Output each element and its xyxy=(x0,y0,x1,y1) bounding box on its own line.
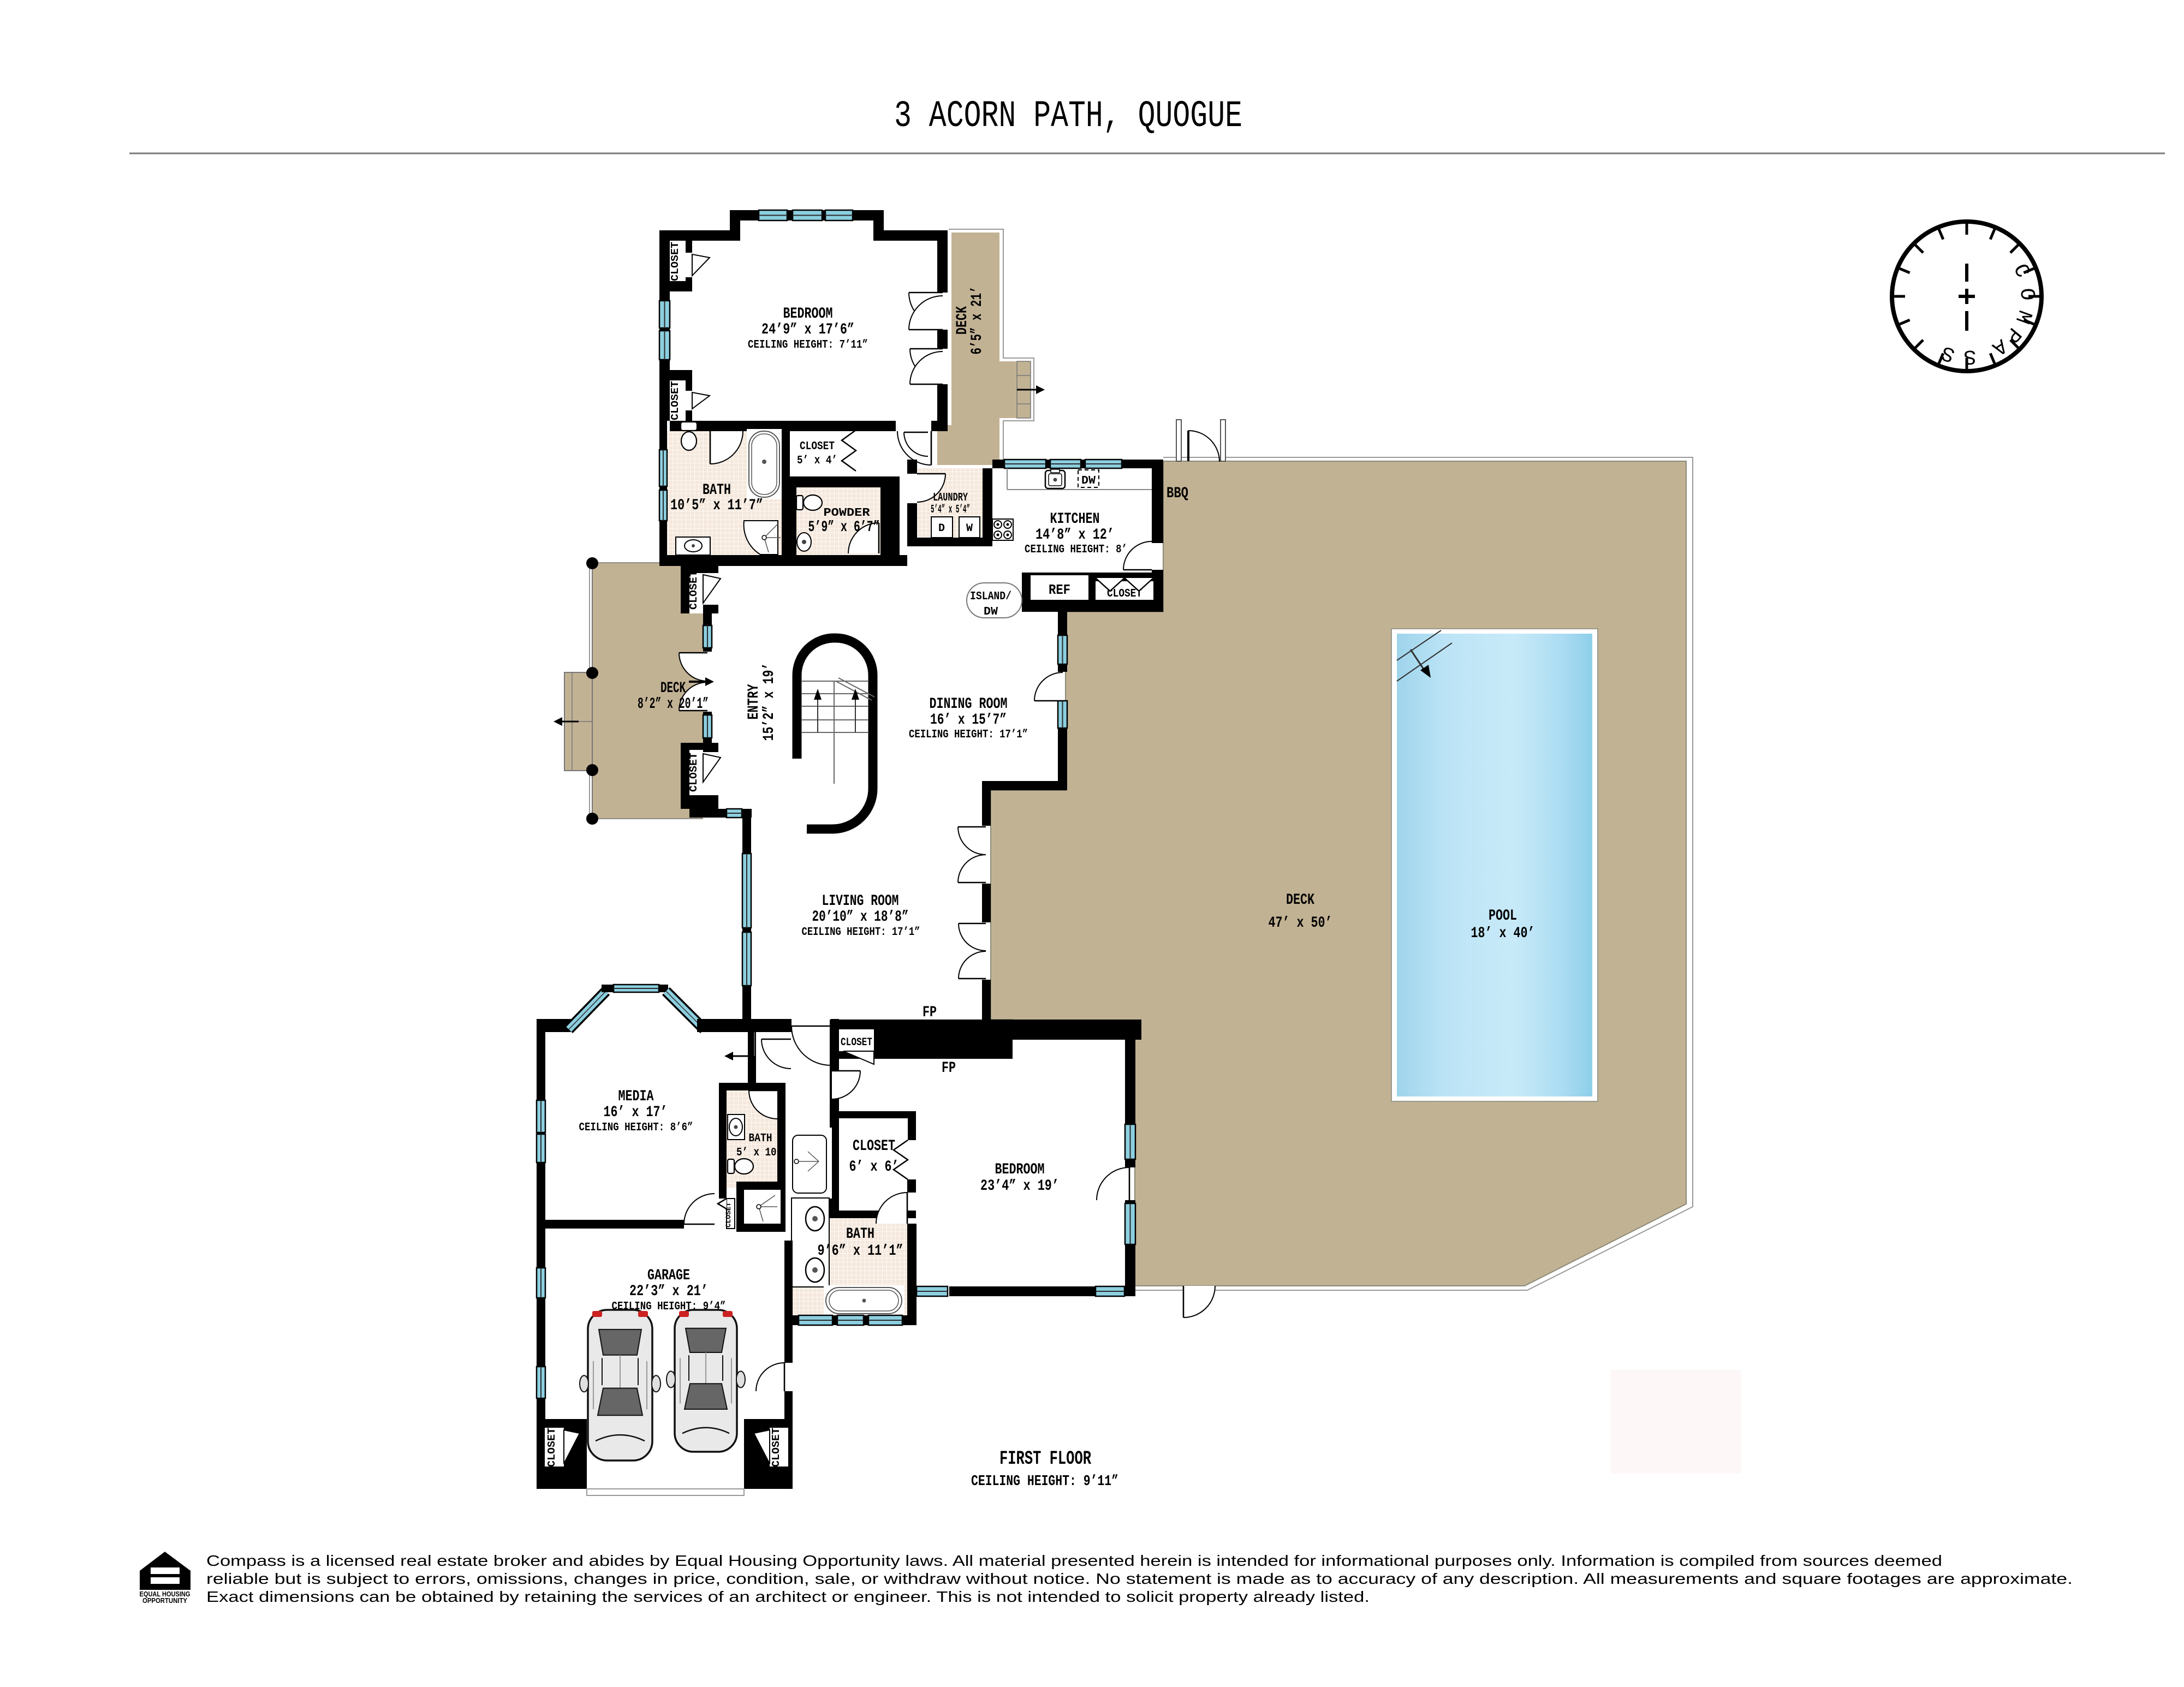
svg-text:CLOSET: CLOSET xyxy=(688,753,700,792)
svg-text:DECK: DECK xyxy=(1286,892,1314,909)
svg-text:CLOSET: CLOSET xyxy=(546,1428,558,1467)
svg-text:POOL: POOL xyxy=(1489,908,1517,925)
svg-text:POWDER: POWDER xyxy=(824,507,870,520)
svg-text:Compass is a licensed real est: Compass is a licensed real estate broker… xyxy=(206,1552,1942,1569)
svg-text:FIRST FLOOR: FIRST FLOOR xyxy=(999,1448,1091,1470)
svg-text:OPPORTUNITY: OPPORTUNITY xyxy=(142,1596,187,1605)
svg-text:S: S xyxy=(1963,344,1977,368)
svg-text:FP: FP xyxy=(942,1060,956,1077)
svg-text:REF: REF xyxy=(1049,582,1070,598)
svg-text:BATH: BATH xyxy=(703,482,731,499)
svg-text:18’ x 40’: 18’ x 40’ xyxy=(1471,925,1535,942)
svg-text:LAUNDRY: LAUNDRY xyxy=(933,492,968,504)
svg-text:CEILING HEIGHT: 8’6”: CEILING HEIGHT: 8’6” xyxy=(579,1122,693,1134)
svg-text:GARAGE: GARAGE xyxy=(647,1267,690,1284)
svg-text:D: D xyxy=(938,522,945,535)
svg-text:CEILING HEIGHT: 8’: CEILING HEIGHT: 8’ xyxy=(1025,544,1127,556)
svg-text:CLOSET: CLOSET xyxy=(669,381,681,420)
svg-text:CLOSET: CLOSET xyxy=(688,570,700,610)
svg-text:CEILING HEIGHT: 7’11”: CEILING HEIGHT: 7’11” xyxy=(748,339,868,351)
svg-text:reliable but is subject to err: reliable but is subject to errors, omiss… xyxy=(206,1570,2073,1587)
svg-text:O: O xyxy=(2015,288,2039,301)
svg-text:6’5” x 21’: 6’5” x 21’ xyxy=(969,287,986,355)
svg-text:DECK: DECK xyxy=(660,680,686,697)
svg-text:CLOSET: CLOSET xyxy=(770,1428,782,1467)
svg-text:BEDROOM: BEDROOM xyxy=(783,306,833,323)
svg-text:BATH: BATH xyxy=(749,1132,772,1145)
svg-text:5’9” x 6’7”: 5’9” x 6’7” xyxy=(808,519,880,536)
svg-text:W: W xyxy=(966,522,973,535)
svg-text:5’ x 10’: 5’ x 10’ xyxy=(736,1147,782,1159)
svg-text:20’10” x 18’8”: 20’10” x 18’8” xyxy=(812,909,909,926)
svg-text:ENTRY: ENTRY xyxy=(746,684,763,719)
svg-text:47’ x 50’: 47’ x 50’ xyxy=(1269,915,1332,932)
svg-text:DW: DW xyxy=(1081,475,1096,487)
svg-text:DW: DW xyxy=(984,606,998,618)
svg-text:16’ x 15’7”: 16’ x 15’7” xyxy=(930,712,1007,729)
svg-text:5’4” x 5’4”: 5’4” x 5’4” xyxy=(931,504,970,516)
svg-text:CLOSET: CLOSET xyxy=(841,1036,872,1049)
svg-text:CEILING HEIGHT: 9’4”: CEILING HEIGHT: 9’4” xyxy=(612,1301,726,1313)
svg-text:5’ x 4’: 5’ x 4’ xyxy=(797,455,837,467)
svg-text:KITCHEN: KITCHEN xyxy=(1050,511,1100,528)
svg-text:CEILING HEIGHT: 17’1”: CEILING HEIGHT: 17’1” xyxy=(909,729,1028,741)
svg-text:Exact dimensions can be obtain: Exact dimensions can be obtained by reta… xyxy=(206,1588,1370,1605)
svg-text:DINING ROOM: DINING ROOM xyxy=(930,696,1008,713)
svg-text:3 ACORN PATH, QUOGUE: 3 ACORN PATH, QUOGUE xyxy=(894,95,1242,138)
svg-text:24’9” x 17’6”: 24’9” x 17’6” xyxy=(761,321,854,338)
svg-text:LIVING ROOM: LIVING ROOM xyxy=(822,893,899,910)
svg-text:10’5” x 11’7”: 10’5” x 11’7” xyxy=(670,497,763,514)
svg-text:15’2” x 19’: 15’2” x 19’ xyxy=(761,663,778,741)
svg-text:ISLAND/: ISLAND/ xyxy=(970,591,1011,603)
svg-text:16’ x 17’: 16’ x 17’ xyxy=(604,1104,668,1121)
svg-text:CLOSET: CLOSET xyxy=(800,440,835,453)
svg-text:MEDIA: MEDIA xyxy=(618,1088,654,1105)
svg-text:23’4” x 19’: 23’4” x 19’ xyxy=(980,1178,1059,1195)
svg-text:CLOSET: CLOSET xyxy=(669,242,681,281)
svg-text:6’ x 6’: 6’ x 6’ xyxy=(849,1159,899,1176)
svg-text:14’8” x 12’: 14’8” x 12’ xyxy=(1036,527,1114,544)
svg-text:CEILING HEIGHT: 9’11”: CEILING HEIGHT: 9’11” xyxy=(971,1474,1118,1490)
svg-text:BATH: BATH xyxy=(846,1226,874,1243)
svg-text:9’6” x 11’1”: 9’6” x 11’1” xyxy=(818,1243,903,1260)
svg-text:8’2” x 20’1”: 8’2” x 20’1” xyxy=(638,696,709,713)
svg-text:BBQ: BBQ xyxy=(1167,485,1188,502)
svg-text:CEILING HEIGHT: 17’1”: CEILING HEIGHT: 17’1” xyxy=(802,926,920,939)
svg-text:FP: FP xyxy=(923,1004,937,1021)
svg-text:22’3” x 21’: 22’3” x 21’ xyxy=(629,1283,708,1300)
svg-text:CLOSET: CLOSET xyxy=(853,1138,895,1155)
svg-text:BEDROOM: BEDROOM xyxy=(995,1161,1045,1178)
